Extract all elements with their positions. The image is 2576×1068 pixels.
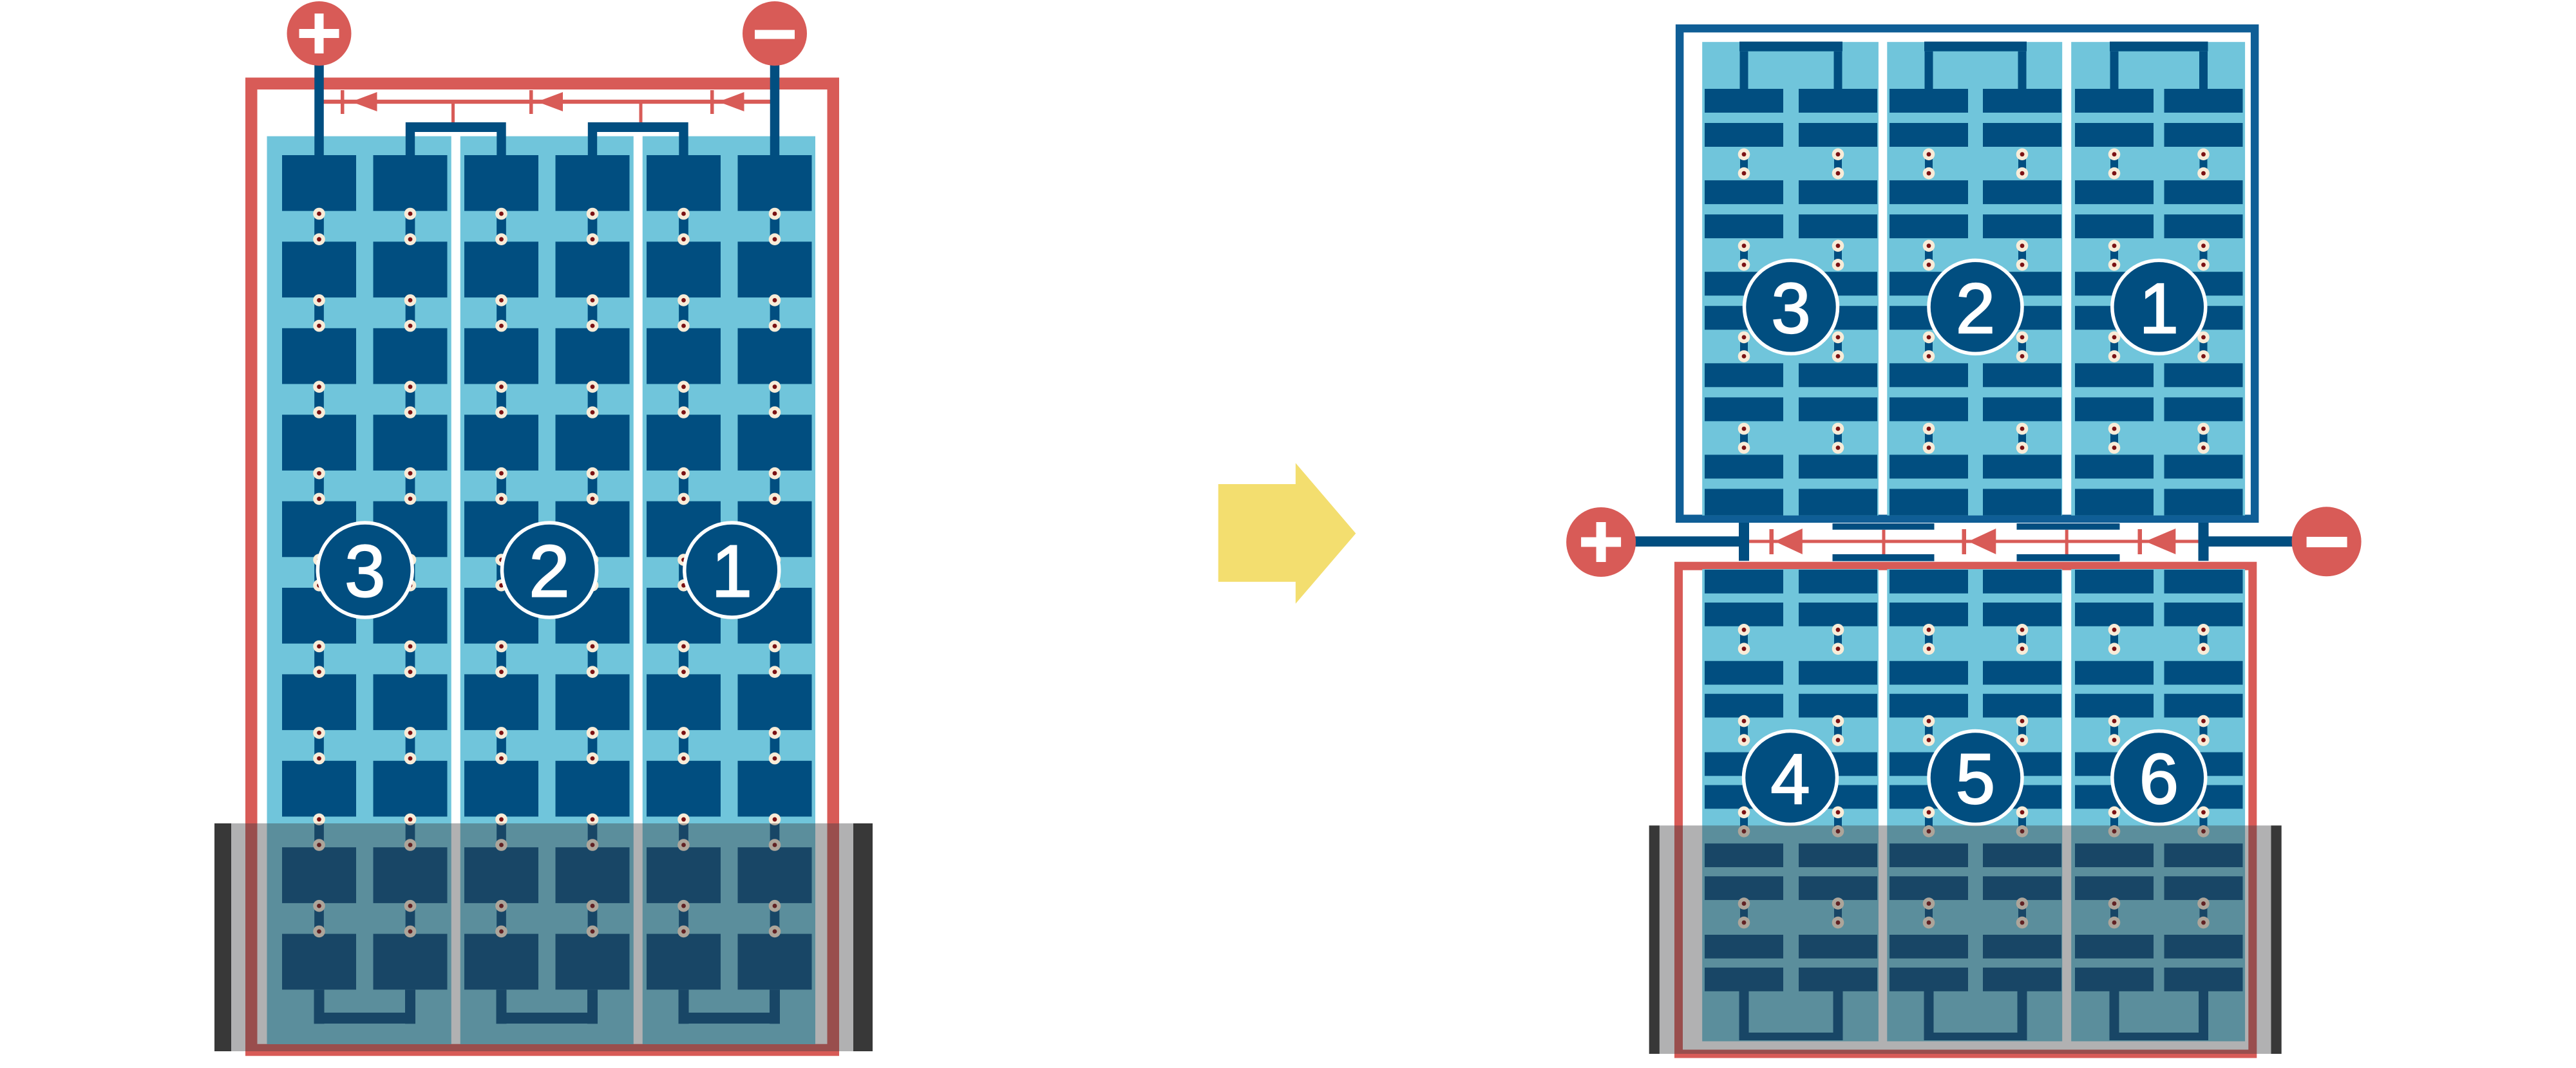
svg-text:2: 2 <box>1956 269 1995 348</box>
svg-text:3: 3 <box>345 531 385 613</box>
svg-text:3: 3 <box>1771 269 1810 348</box>
svg-text:1: 1 <box>2139 269 2179 348</box>
svg-text:2: 2 <box>529 531 569 613</box>
svg-text:5: 5 <box>1956 740 1995 819</box>
svg-text:6: 6 <box>2139 740 2179 819</box>
svg-text:4: 4 <box>1770 740 1810 819</box>
svg-text:1: 1 <box>712 531 752 613</box>
